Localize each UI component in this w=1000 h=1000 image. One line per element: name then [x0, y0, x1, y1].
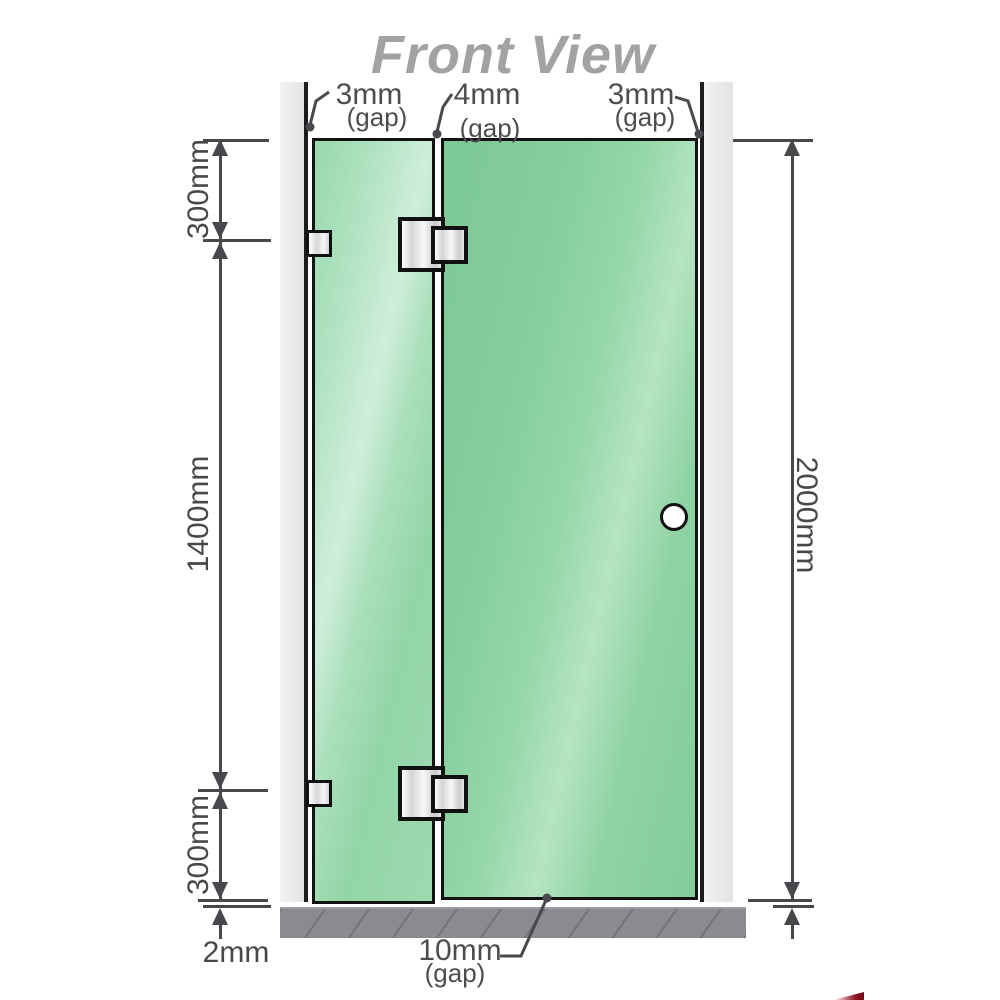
arrow-down-icon: [212, 772, 228, 789]
dimension-label-total-2000mm: 2000mm: [791, 415, 821, 615]
shower-screen-front-view-diagram: Front View 300mm 1400mm 300mm 2mm: [0, 0, 1000, 1000]
hinge-top: [398, 217, 470, 273]
diagram-title: Front View: [13, 24, 1000, 86]
dimension-label-top-300mm: 300mm: [184, 89, 214, 289]
logo-fragment: [836, 992, 864, 1000]
gap-label-bottom-suffix: (gap): [405, 960, 505, 986]
arrow-down-icon: [784, 882, 800, 899]
dimension-label-middle-1400mm: 1400mm: [184, 414, 214, 614]
dimension-label-floor-gap-2mm: 2mm: [196, 938, 276, 968]
left-wall: [280, 82, 304, 902]
hinge-bottom: [398, 766, 470, 822]
arrow-up-icon: [784, 139, 800, 156]
hinge-top-right-plate: [431, 226, 468, 264]
wall-bracket-bottom: [306, 780, 332, 807]
door-knob: [660, 503, 688, 531]
arrow-up-icon: [784, 908, 800, 925]
arrow-up-icon: [212, 908, 228, 925]
right-wall: [704, 82, 733, 902]
right-floor-gap-arrow-tail: [791, 925, 794, 939]
dimension-label-bottom-300mm: 300mm: [184, 745, 214, 945]
ext-line-right-top: [733, 139, 813, 142]
gap-label-right-suffix: (gap): [598, 104, 692, 130]
hinge-bottom-right-plate: [431, 775, 468, 813]
arrow-up-icon: [212, 242, 228, 259]
floor-base: [280, 907, 746, 938]
ext-line-right-bottom: [748, 899, 812, 902]
gap-label-center-4mm: 4mm: [448, 80, 526, 110]
gap-label-center-suffix: (gap): [443, 115, 537, 141]
left-wall-edge-line: [304, 82, 308, 902]
wall-bracket-top: [306, 230, 332, 257]
gap-label-left-suffix: (gap): [330, 104, 424, 130]
